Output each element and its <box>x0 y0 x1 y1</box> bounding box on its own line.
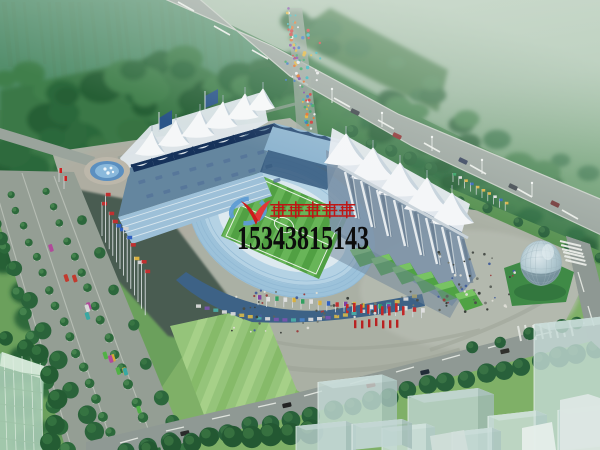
svg-text:15343815143: 15343815143 <box>237 220 369 257</box>
